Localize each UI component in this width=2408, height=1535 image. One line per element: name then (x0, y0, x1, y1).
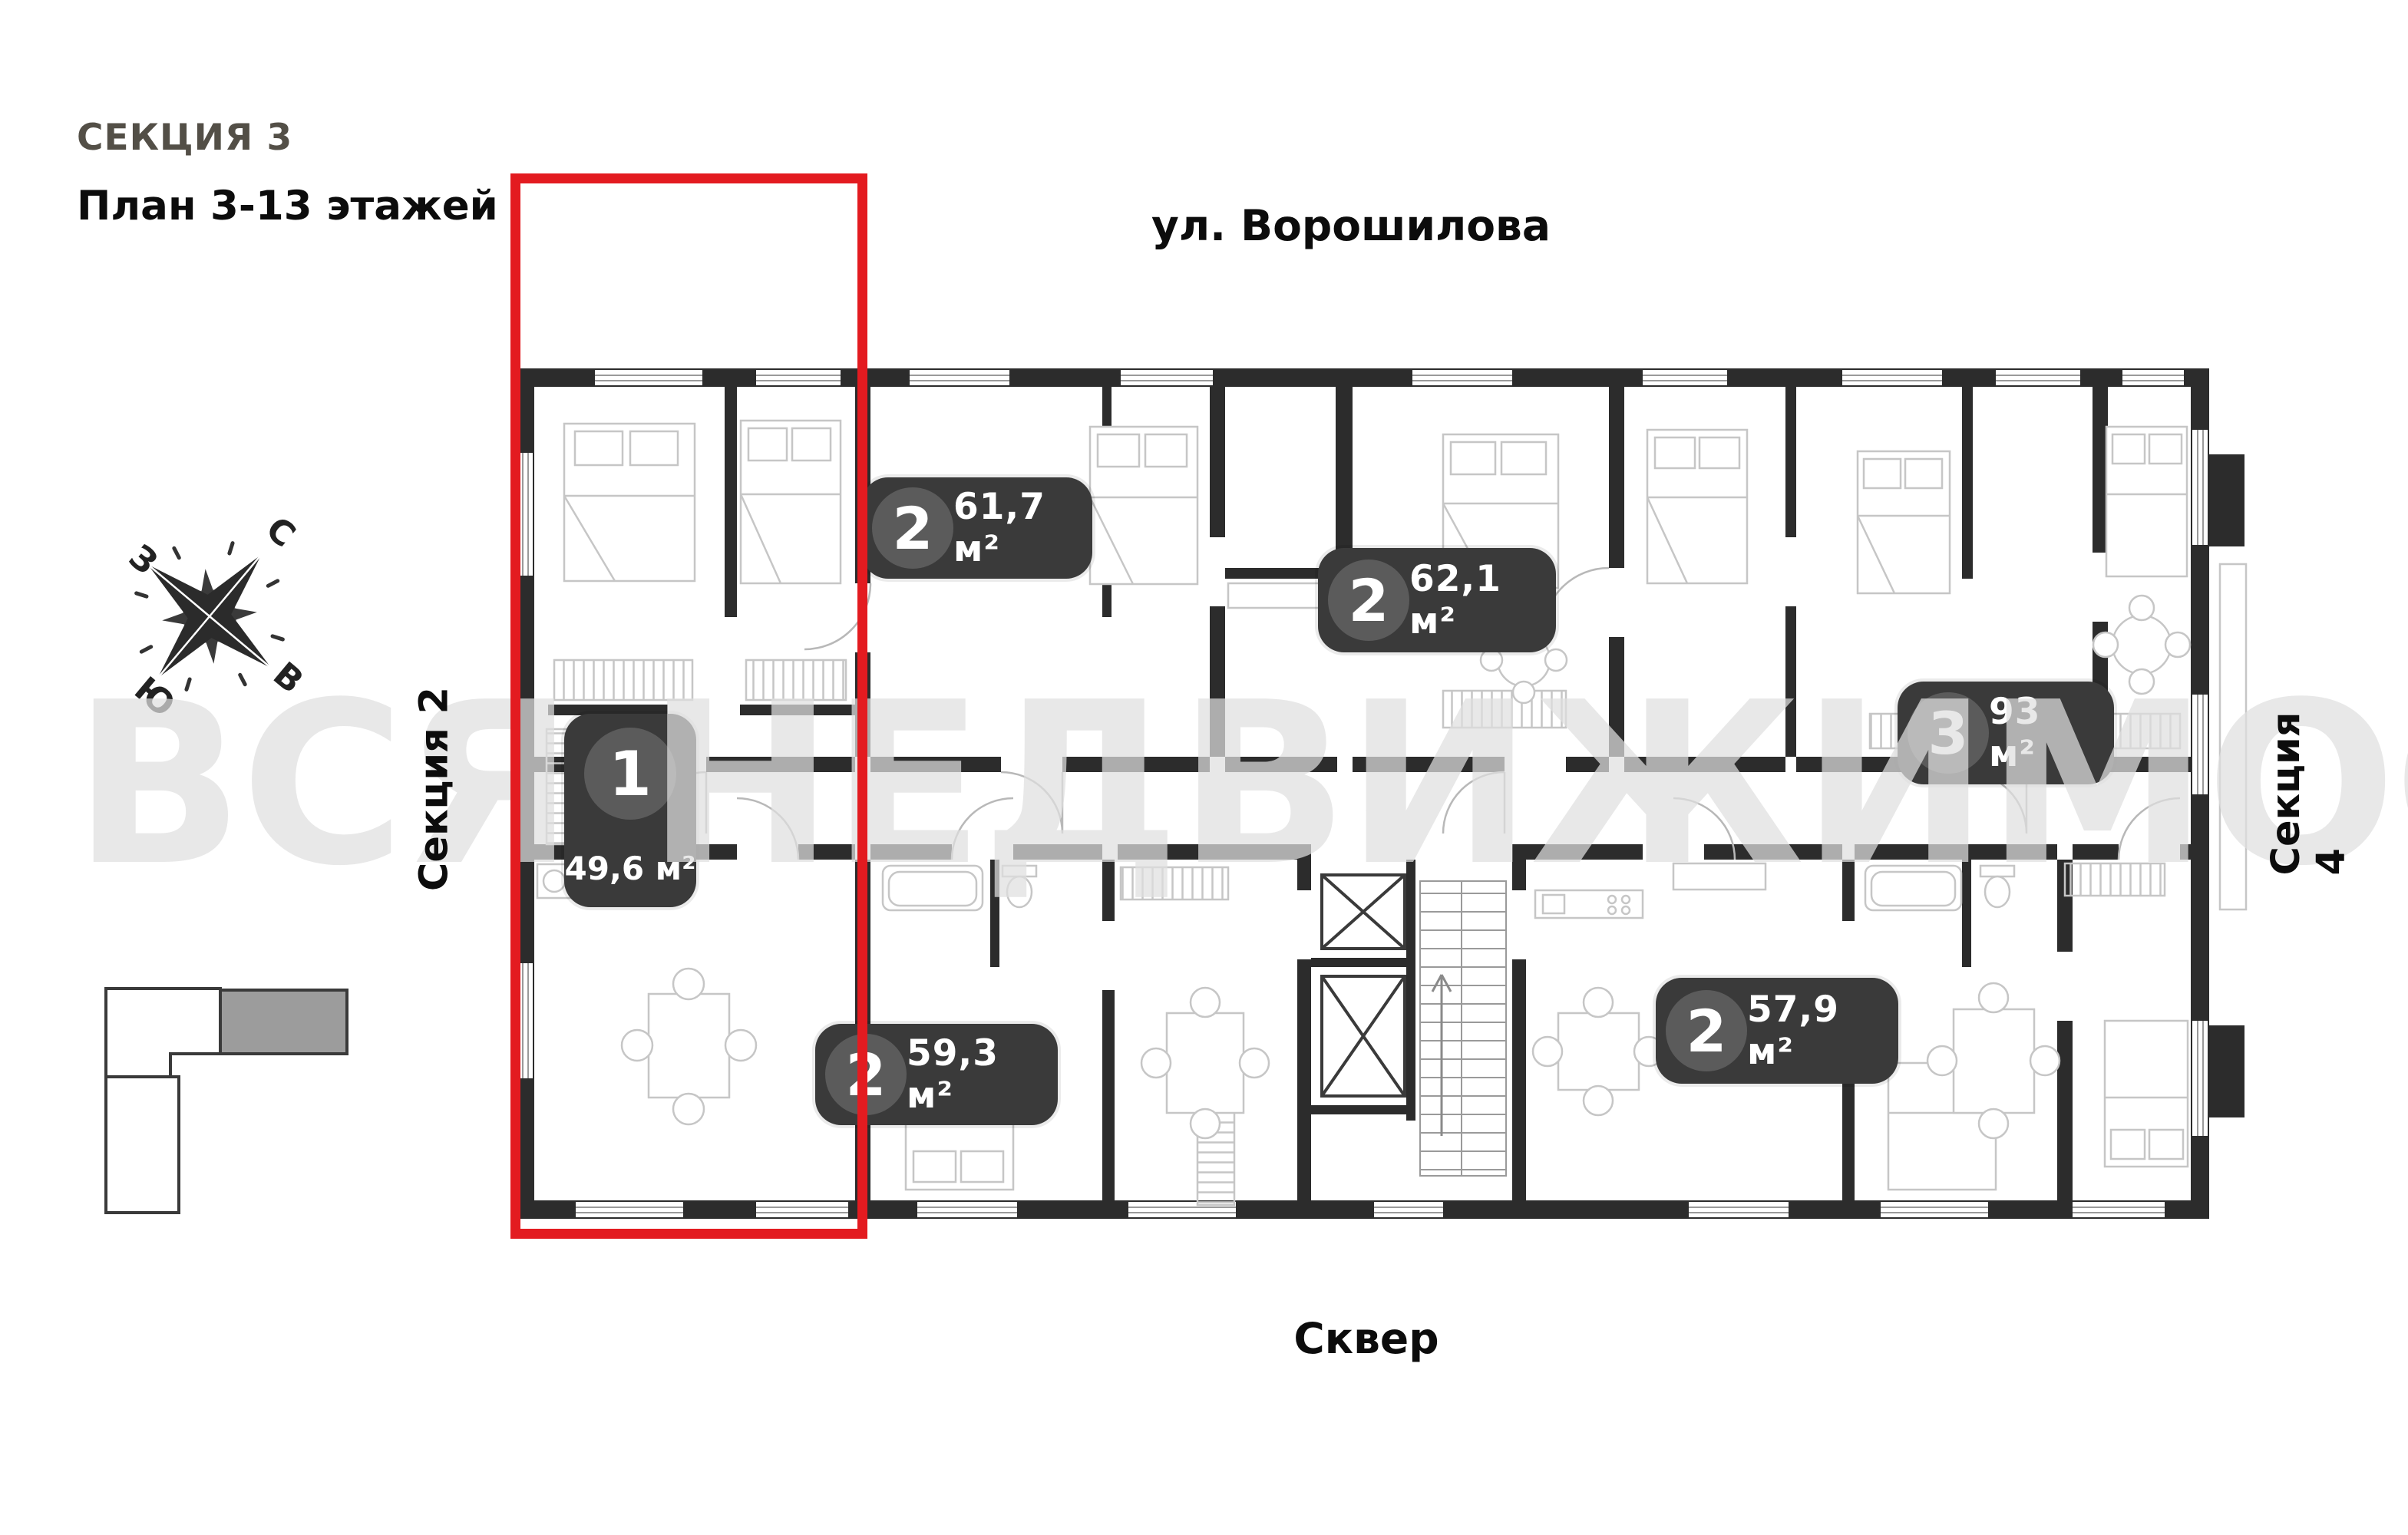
apartment-area: 62,1 м² (1409, 558, 1533, 642)
apartment-badge-3[interactable]: 2 62,1 м² (1318, 548, 1556, 652)
square-label: Сквер (1075, 1314, 1658, 1363)
section-2-label: Секция 2 (412, 687, 457, 891)
rooms-count: 2 (1328, 560, 1409, 641)
rooms-count: 2 (872, 487, 953, 569)
section-title: СЕКЦИЯ 3 (77, 117, 292, 159)
rooms-count: 3 (1908, 692, 1989, 774)
stairs-icon (1420, 881, 1506, 1176)
elevator-icon (1322, 875, 1405, 1096)
minimap-current-section (220, 990, 347, 1054)
apartment-area: 57,9 м² (1747, 989, 1875, 1073)
apartment-area: 59,3 м² (907, 1032, 1035, 1117)
plan-subtitle: План 3-13 этажей (77, 183, 498, 229)
compass-north: С (259, 510, 303, 556)
apartment-area: 61,7 м² (953, 486, 1069, 570)
building-minimap (106, 989, 347, 1213)
street-label: ул. Ворошилова (929, 201, 1773, 250)
apartment-badge-6[interactable]: 2 57,9 м² (1656, 978, 1898, 1084)
highlighted-apartment-outline[interactable] (510, 173, 867, 1239)
apartment-badge-4[interactable]: 3 93 м² (1898, 682, 2114, 784)
rooms-count: 2 (1666, 990, 1747, 1071)
compass-rose: С З В Ю (96, 503, 323, 730)
compass-south: Ю (127, 669, 182, 725)
apartment-area: 93 м² (1989, 691, 2091, 775)
apartment-badge-2[interactable]: 2 61,7 м² (862, 477, 1092, 579)
section-4-label: Секция 4 (2264, 712, 2354, 876)
compass-east: В (266, 655, 310, 701)
floor-plan-page: { "header": { "section_title": "СЕКЦИЯ 3… (0, 0, 2408, 1535)
